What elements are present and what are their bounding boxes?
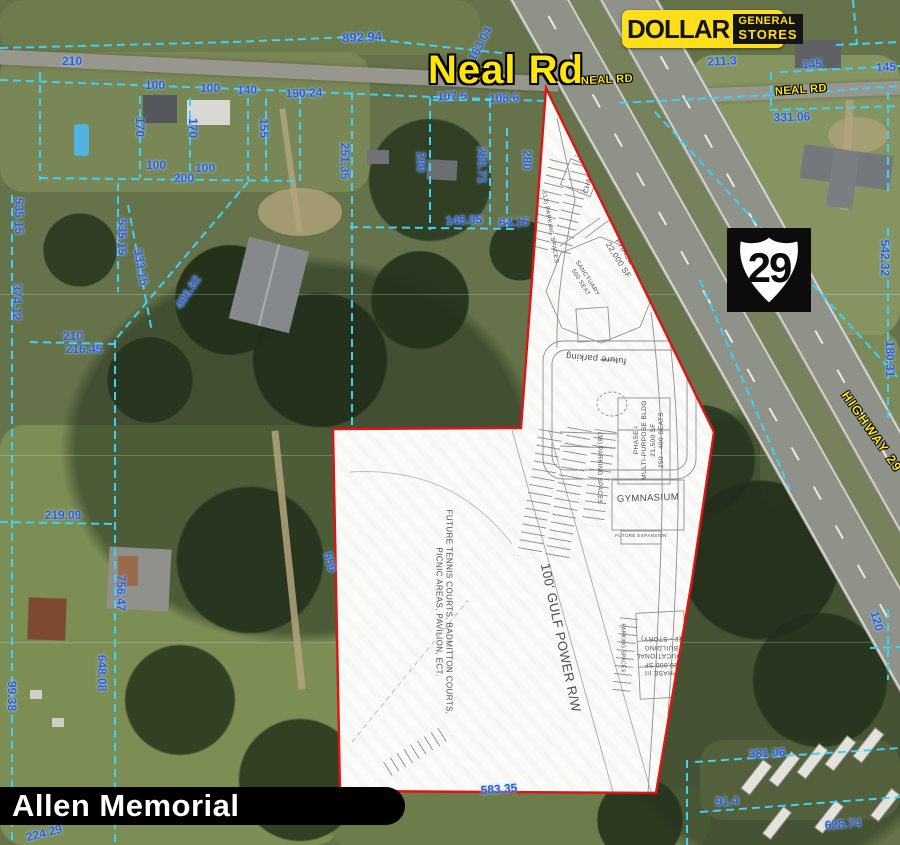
parcel-dimension-label: 100 [200, 82, 220, 94]
parcel-dimension-label: 100 [145, 79, 165, 91]
parcel-dimension-label: 285.71 [476, 147, 488, 184]
parcel-dimension-label: 145.85 [445, 213, 482, 226]
map-canvas[interactable]: CHAPELPHASE II 22,000 SFSANCTUARY 500 SE… [0, 0, 900, 845]
parcel-dimension-label: 180.31 [884, 341, 896, 378]
parcel-dimension-label: 100 [146, 159, 166, 171]
parcel-dimension-label: 374.12 [11, 284, 23, 321]
parcel-dimension-label: 91.4 [715, 794, 739, 807]
parcel-dimension-label: 756.47 [115, 575, 127, 612]
parcel-dimension-label: 535.15 [116, 219, 128, 256]
dollar-general-word: DOLLAR [627, 16, 729, 42]
dollar-general-logo: DOLLAR GENERAL STORES [622, 10, 784, 48]
neal-rd-main-label: Neal Rd [428, 48, 584, 93]
parcel-dimension-label: 170 [187, 118, 199, 138]
parcel-dimension-label: 648.08 [96, 655, 108, 692]
dollar-general-line2: STORES [738, 28, 797, 42]
parcel-dimension-label: 145 [876, 60, 897, 73]
parcel-dimension-label: 170 [134, 117, 146, 137]
parcel-dimension-label: 140 [237, 84, 257, 96]
parcel-dimension-label: 211.3 [707, 54, 737, 68]
parcel-dimension-label: 190.24 [285, 86, 322, 99]
parcel-dimension-label: 628.74 [824, 817, 861, 832]
parcel-dimension-label: 381.06 [748, 746, 785, 760]
map-title-bar: Allen Memorial [0, 787, 405, 825]
parcel-dimension-label: 280 [415, 152, 427, 172]
parcel-dimension-label: 251.35 [339, 143, 351, 180]
parcel-dimension-label: 216.45 [66, 343, 103, 355]
parcel-dimension-label: 210 [63, 330, 83, 342]
us-route-29-shield: 29 [727, 228, 811, 312]
parcel-dimension-label: 99.38 [6, 681, 18, 711]
parcel-dimension-label: 219.09 [45, 509, 82, 521]
parcel-dimension-label: 200 [174, 172, 194, 184]
parcel-dimension-label: 583.35 [480, 782, 517, 797]
parcel-dimension-label: 108.6 [489, 91, 519, 104]
dollar-general-stores-block: GENERAL STORES [733, 14, 802, 43]
parcel-dimension-label: 331.06 [773, 110, 810, 123]
parcel-dimension-label: 155 [258, 118, 270, 138]
parcel-dimension-label: 535.15 [13, 198, 25, 235]
parcel-dimension-label: 542.32 [879, 240, 891, 277]
parcel-dimension-label: 280 [521, 150, 533, 170]
parcel-dimension-label: 64.15 [499, 215, 529, 228]
parcel-dimension-label: 892.94 [342, 29, 382, 44]
parcel-dimension-label: 100 [195, 162, 215, 174]
us-shield-number: 29 [727, 244, 811, 292]
parcel-dimension-label: 210 [62, 55, 82, 67]
parcel-dimension-label: 145 [802, 57, 823, 70]
